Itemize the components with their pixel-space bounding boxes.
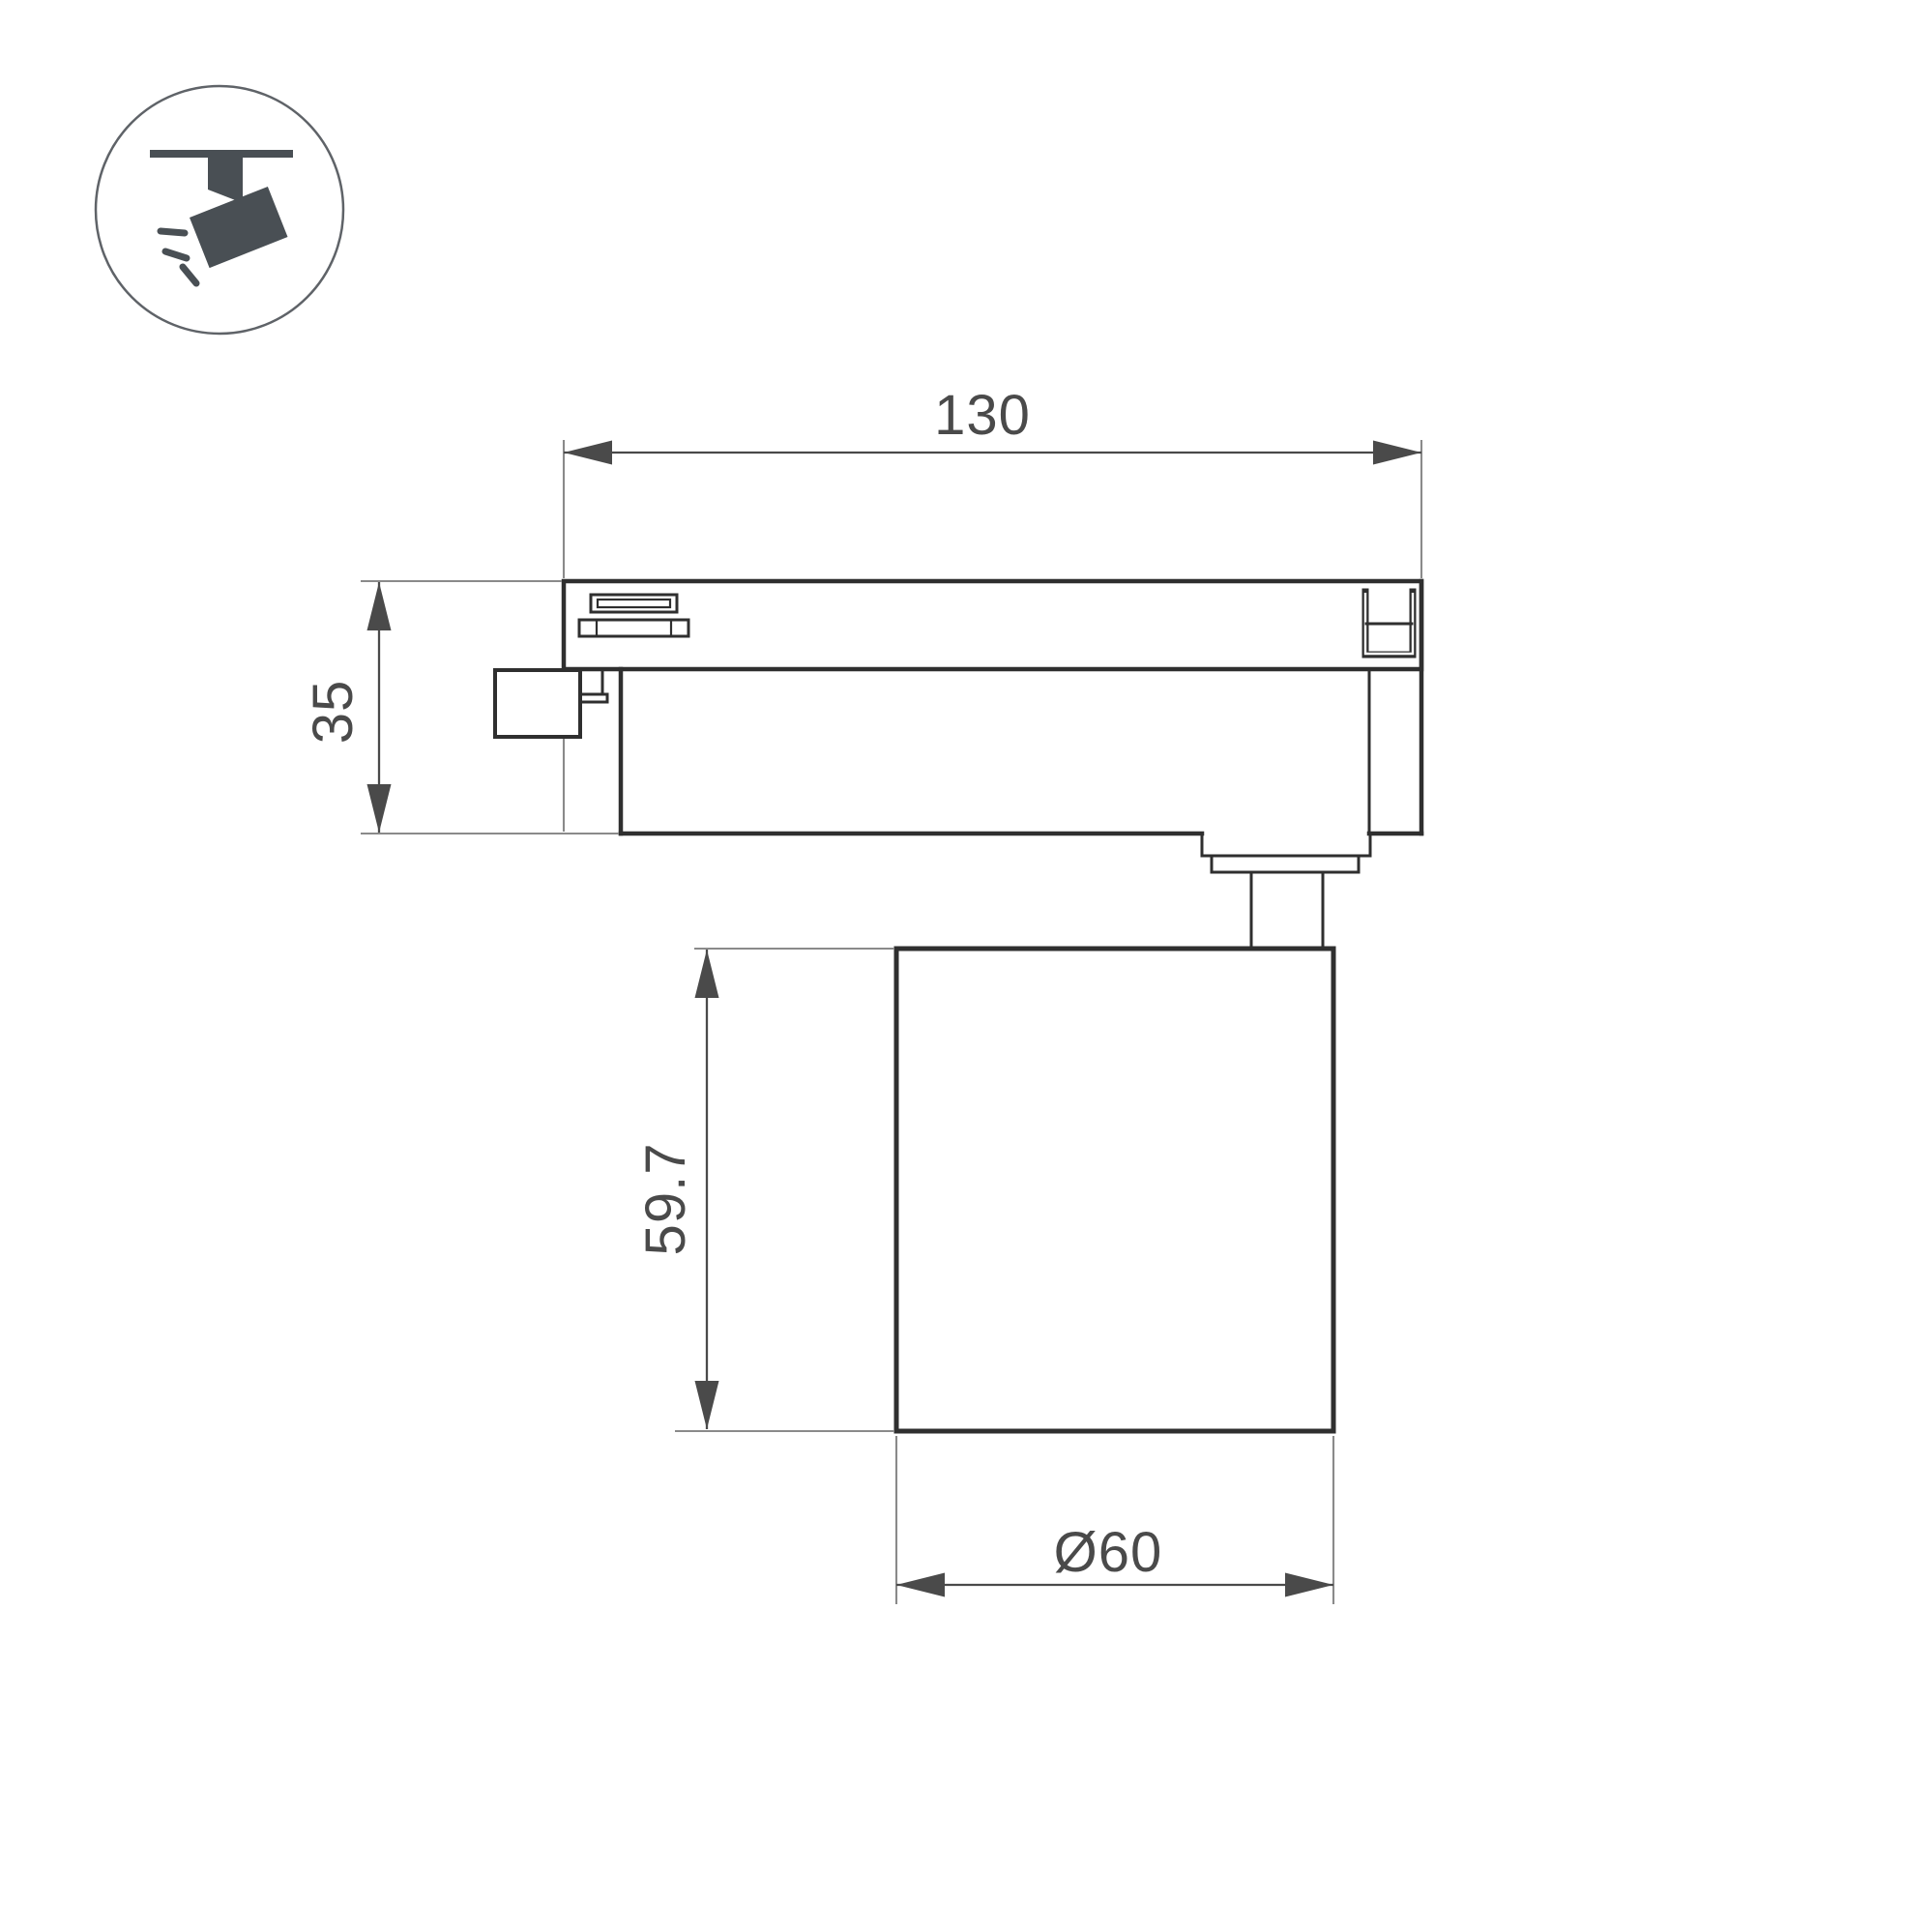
arrow-right-icon [1373,441,1421,465]
side-view-drawing [495,581,1421,1431]
arrow-down-icon [695,1381,719,1429]
dimension-label: 130 [934,384,1031,447]
dimension-lamp-height: 59.7 [634,949,894,1431]
dimension-label: Ø60 [1054,1521,1163,1584]
dimension-label: 59.7 [634,1143,697,1256]
arrow-right-icon [1285,1573,1333,1597]
dimension-label: 35 [302,680,365,745]
arrow-up-icon [367,582,392,630]
pivot-step-1 [1202,834,1370,856]
dimension-lamp-diameter: Ø60 [896,1436,1333,1604]
product-icon [96,86,343,334]
pivot-step-2 [1212,856,1359,872]
technical-drawing-svg: 130 35 59.7 Ø60 [0,0,1932,1932]
lock-knob [495,670,580,737]
arrow-up-icon [695,950,719,998]
pivot-joint [1202,834,1370,948]
arrow-down-icon [367,784,392,833]
ground-contact-hook [580,670,607,702]
lamp-body [896,949,1333,1431]
track-adapter-top-bar [564,581,1421,669]
arrow-left-icon [896,1573,945,1597]
drawing-canvas: 130 35 59.7 Ø60 [0,0,1932,1932]
arrow-left-icon [564,441,612,465]
dimension-track-length: 130 [564,384,1421,578]
